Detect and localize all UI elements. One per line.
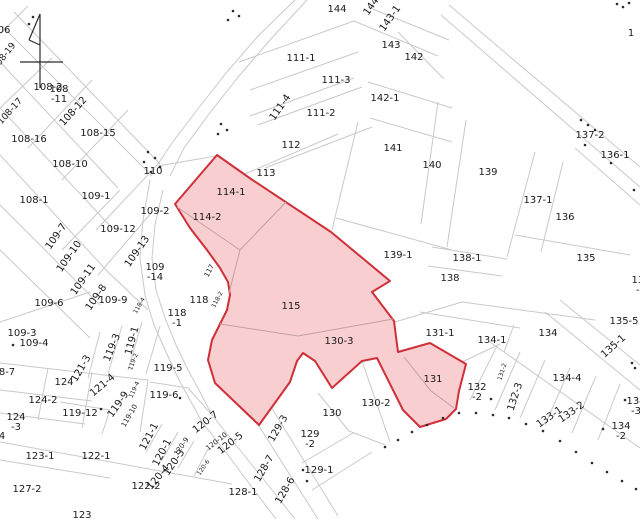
boundary-dot [633, 189, 636, 192]
highlighted-parcel-region[interactable] [175, 155, 466, 427]
boundary-dot [232, 10, 235, 13]
boundary-dot [226, 129, 229, 132]
boundary-dot [602, 428, 605, 431]
boundary-dot [147, 151, 150, 154]
boundary-dot [397, 439, 400, 442]
boundary-dot [584, 144, 587, 147]
boundary-dot [384, 446, 387, 449]
boundary-dot [575, 451, 578, 454]
boundary-dot [143, 161, 146, 164]
parcel-map-svg [0, 0, 640, 519]
boundary-dot [594, 129, 597, 132]
boundary-dot [238, 15, 241, 18]
boundary-dot [525, 423, 528, 426]
boundary-dot [622, 6, 625, 9]
boundary-dot [100, 408, 103, 411]
boundary-dot [628, 2, 631, 5]
boundary-dot [508, 417, 511, 420]
boundary-dot [227, 19, 230, 22]
boundary-dot [587, 124, 590, 127]
boundary-dot [159, 166, 162, 169]
boundary-dot [624, 399, 627, 402]
boundary-dot [559, 440, 562, 443]
boundary-dot [635, 488, 638, 491]
boundary-dot [217, 133, 220, 136]
boundary-dot [591, 462, 594, 465]
boundary-dot [631, 362, 634, 365]
boundary-dot [475, 412, 478, 415]
boundary-dot [616, 3, 619, 6]
boundary-dot [12, 344, 15, 347]
boundary-dot [150, 171, 153, 174]
boundary-dot [411, 431, 414, 434]
boundary-dot [426, 424, 429, 427]
boundary-dot [542, 430, 545, 433]
boundary-dot [28, 23, 31, 26]
boundary-dot [442, 417, 445, 420]
boundary-dot [220, 123, 223, 126]
boundary-dot [32, 16, 35, 19]
boundary-dot [458, 412, 461, 415]
boundary-dot [302, 469, 305, 472]
cadastral-map-canvas[interactable]: 06108-19108-2108 -11108-12108-17108-1510… [0, 0, 640, 519]
boundary-dot [580, 119, 583, 122]
boundary-dot [621, 480, 624, 483]
boundary-dot [490, 398, 493, 401]
boundary-dot [606, 471, 609, 474]
boundary-dot [179, 397, 182, 400]
boundary-dot [634, 367, 637, 370]
boundary-dot [492, 414, 495, 417]
boundary-dot [306, 480, 309, 483]
boundary-dot [610, 162, 613, 165]
boundary-dot [154, 157, 157, 160]
